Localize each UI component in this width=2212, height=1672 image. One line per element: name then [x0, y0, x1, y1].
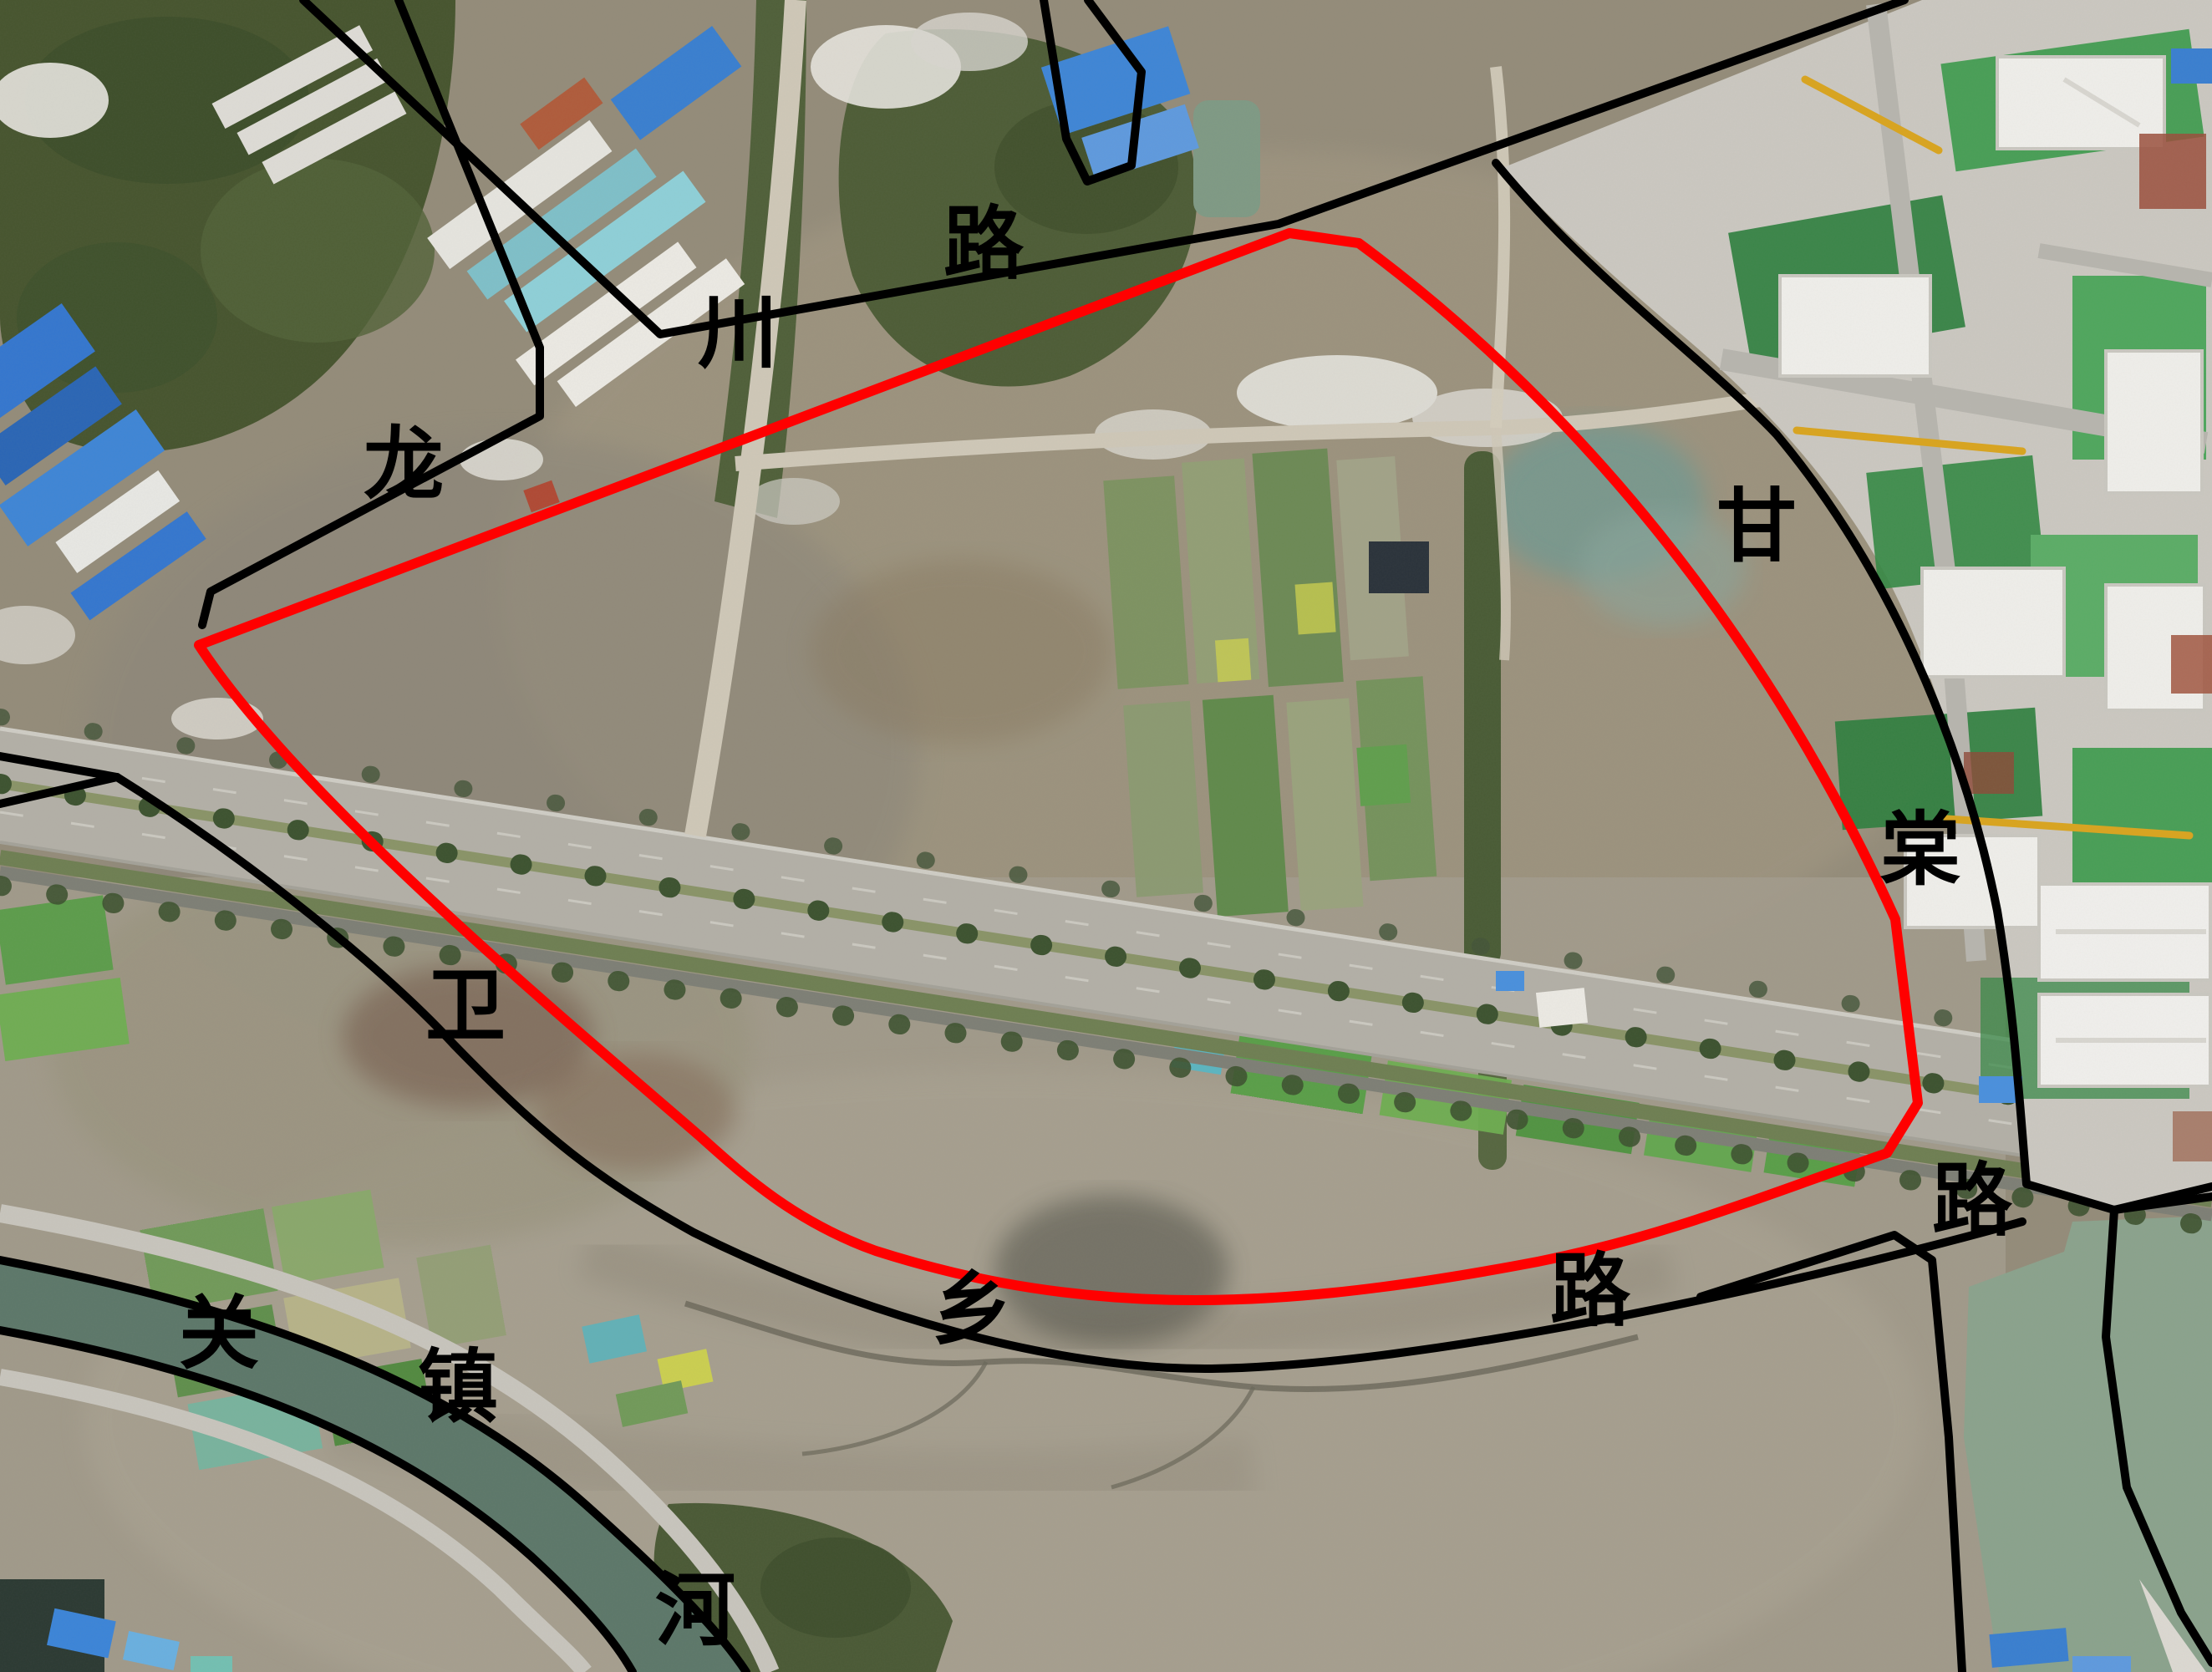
aerial-planning-map: 龙川路甘棠路卫乡路关镇河 [0, 0, 2212, 1672]
gantang-road-char-3: 路 [1932, 1154, 2013, 1248]
map-canvas: 龙川路甘棠路卫乡路关镇河 [0, 0, 2212, 1672]
weixiang-road-char-1: 卫 [425, 959, 506, 1053]
gantang-road-char-1: 甘 [1716, 480, 1797, 573]
weixiang-road-char-3: 路 [1550, 1244, 1631, 1338]
guanzhen-river-char-1: 关 [179, 1287, 259, 1380]
longchuan-road-char-2: 川 [698, 286, 778, 379]
longchuan-road-char-1: 龙 [364, 418, 444, 511]
gantang-road-char-2: 棠 [1879, 803, 1960, 897]
longchuan-road-char-3: 路 [943, 197, 1025, 291]
weixiang-road-char-2: 乡 [932, 1263, 1012, 1356]
guanzhen-river-char-2: 镇 [418, 1340, 498, 1434]
guanzhen-river-char-3: 河 [655, 1563, 735, 1657]
